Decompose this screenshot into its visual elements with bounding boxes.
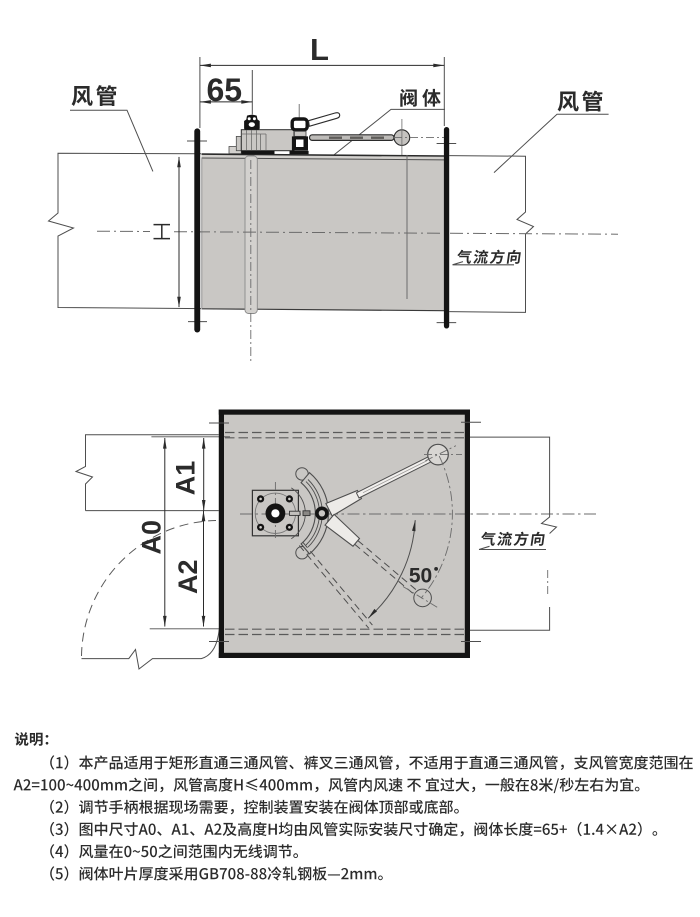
svg-text:L: L	[310, 32, 329, 67]
svg-text:A2: A2	[173, 560, 203, 595]
svg-text:65: 65	[207, 72, 243, 108]
svg-text:50: 50	[409, 565, 432, 588]
svg-text:A1: A1	[171, 461, 201, 496]
svg-text:A0: A0	[137, 520, 167, 555]
